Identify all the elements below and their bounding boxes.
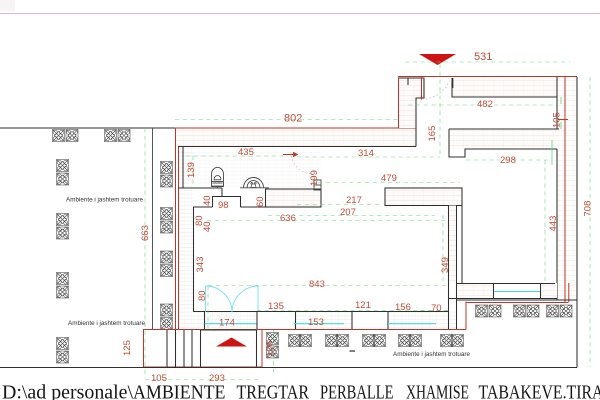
svg-text:531: 531 <box>474 51 492 63</box>
svg-text:139: 139 <box>186 162 197 178</box>
svg-text:Ambiente i jashtem trotuare: Ambiente i jashtem trotuare <box>393 351 470 358</box>
svg-text:40: 40 <box>202 195 213 206</box>
svg-text:TABAKEVE.TIRA: TABAKEVE.TIRA <box>479 382 600 400</box>
svg-text:125: 125 <box>122 340 133 356</box>
svg-text:843: 843 <box>309 279 325 290</box>
svg-text:TREGTAR: TREGTAR <box>237 382 310 400</box>
svg-text:482: 482 <box>477 99 493 110</box>
svg-text:314: 314 <box>358 148 374 159</box>
svg-text:165: 165 <box>427 126 438 142</box>
svg-text:349: 349 <box>440 257 451 273</box>
svg-text:174: 174 <box>219 318 235 329</box>
svg-text:435: 435 <box>238 147 254 158</box>
svg-text:70: 70 <box>431 303 442 314</box>
svg-text:156: 156 <box>395 302 411 313</box>
svg-text:105: 105 <box>552 112 563 128</box>
svg-text:135: 135 <box>268 301 284 312</box>
svg-text:AMBIENTE: AMBIENTE <box>133 382 226 400</box>
svg-text:802: 802 <box>284 113 302 125</box>
svg-text:199: 199 <box>309 170 320 186</box>
svg-text:207: 207 <box>340 207 356 218</box>
svg-text:126: 126 <box>265 341 276 357</box>
svg-text:80: 80 <box>194 215 205 226</box>
svg-text:121: 121 <box>355 300 371 311</box>
svg-text:343: 343 <box>195 257 206 273</box>
svg-text:708: 708 <box>583 201 594 217</box>
svg-text:98: 98 <box>218 200 229 211</box>
svg-text:217: 217 <box>346 195 362 206</box>
svg-text:Ambiente i jashtem trotuare: Ambiente i jashtem trotuare <box>68 320 145 327</box>
svg-text:298: 298 <box>500 155 516 166</box>
svg-text:479: 479 <box>381 173 397 184</box>
svg-text:636: 636 <box>280 213 296 224</box>
svg-text:PERBALLE: PERBALLE <box>320 382 394 400</box>
svg-text:XHAMISE: XHAMISE <box>406 382 469 400</box>
svg-text:80: 80 <box>197 290 208 301</box>
svg-text:Ambiente i jashtem trotuare: Ambiente i jashtem trotuare <box>66 197 143 204</box>
svg-text:153: 153 <box>308 317 324 328</box>
svg-text:D:\ad personale\: D:\ad personale\ <box>2 382 133 400</box>
svg-text:60: 60 <box>255 196 266 207</box>
svg-text:663: 663 <box>140 225 151 241</box>
svg-text:443: 443 <box>548 216 559 232</box>
